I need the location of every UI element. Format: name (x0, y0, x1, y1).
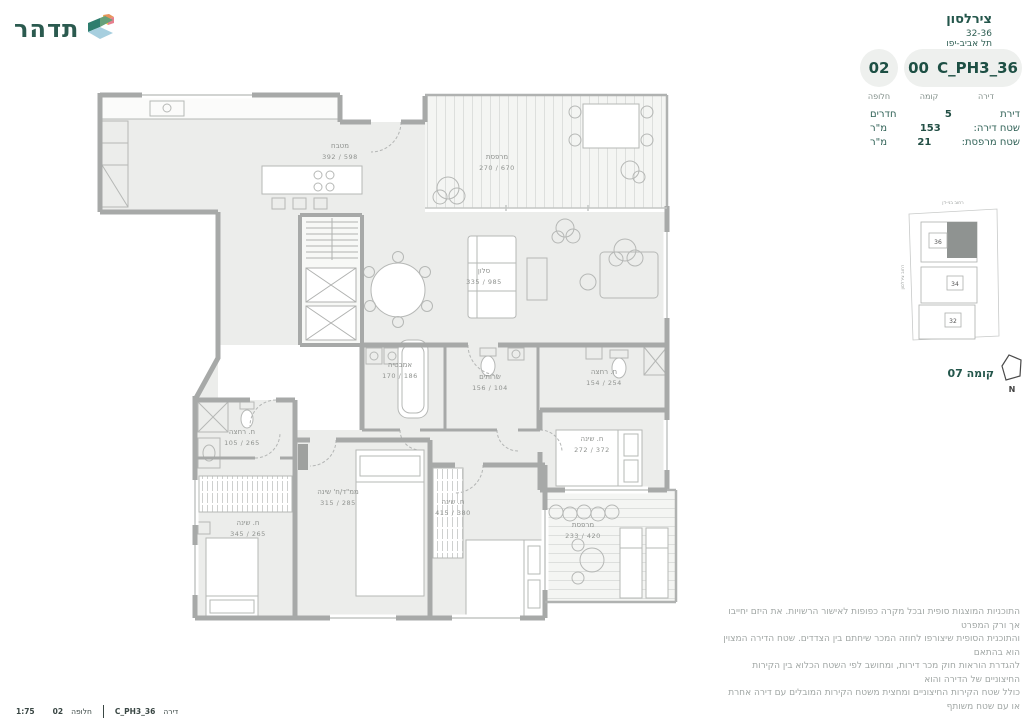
key-plan: 36 34 32 רחוב בני-דן רחוב צירלסון (901, 201, 999, 340)
room-label-bedroom-left: ח. שינה265 / 345 (203, 518, 293, 540)
company-logo-text: תדהר (14, 15, 79, 43)
keyplan-street-left: רחוב צירלסון (901, 264, 906, 289)
detail-balcony-label: שטח מרפסת: (962, 136, 1020, 150)
footer-alt-value: 02 (53, 707, 63, 716)
room-label-mamad: ממ"ד/ח' שינה285 / 315 (293, 487, 383, 509)
footer-alt-label: חלופה (71, 707, 92, 716)
room-label-living: סלון985 / 335 (439, 266, 529, 288)
stairs-elevator-core (302, 217, 360, 343)
unit-value: 36_C_PH3 (937, 59, 1018, 77)
room-label-balcony-bottom: מרפסת420 / 233 (538, 520, 628, 542)
company-logo: תדהר (14, 14, 119, 44)
disclaimer-line-2: והתוכנית הסופית שיצורפו לחוזה המכר שיחתם… (720, 633, 1020, 660)
apartment-details: דירת 5 חדרים שטח דירה: 153 מ"ר שטח מרפסת… (870, 108, 1020, 150)
keyplan-building-34: 34 (951, 281, 959, 288)
detail-balcony-value: 21 (917, 136, 931, 150)
detail-rooms-unit: חדרים (870, 108, 897, 122)
footer-scale: 1:75 (16, 707, 35, 716)
keyplan-building-32: 32 (949, 318, 957, 325)
unit-label: דירה (956, 92, 1016, 101)
project-numbers: 32-36 (946, 29, 992, 39)
detail-rooms-label: דירת (1000, 108, 1020, 122)
legal-disclaimer: התוכניות המוצגות סופית ובכל מקרה כפופות … (720, 606, 1020, 714)
project-city: תל אביב-יפו (946, 39, 992, 49)
detail-rooms-value: 5 (945, 108, 952, 122)
room-label-bedroom-mid: ח. שינה380 / 415 (408, 497, 498, 519)
room-label-wc: שרותים104 / 156 (445, 372, 535, 394)
alternative-badge: 02 (860, 49, 898, 87)
disclaimer-line-1: התוכניות המוצגות סופית ובכל מקרה כפופות … (720, 606, 1020, 633)
footer-divider (103, 705, 104, 718)
disclaimer-line-3: להגדרת הוראות חוק מכר דירות, ומחושב לפי … (720, 660, 1020, 687)
detail-area: שטח דירה: 153 מ"ר (870, 122, 1020, 136)
keyplan-building-36: 36 (934, 239, 942, 246)
disclaimer-line-4: כולל שטח הקירות החיצוניים ומחצית משטח הק… (720, 687, 1020, 714)
footer-unit-label: דירה (163, 707, 178, 716)
footer-unit-value: 36_C_PH3 (115, 707, 155, 716)
detail-area-value: 153 (920, 122, 941, 136)
keyplan-street-top: רחוב בני-דן (942, 201, 964, 206)
unit-floor-badge: 36_C_PH3 00 (904, 49, 1022, 87)
north-letter: N (1009, 385, 1016, 394)
alternative-value: 02 (869, 59, 890, 77)
north-arrow-icon: N (1002, 355, 1021, 394)
floor-value: 00 (908, 59, 929, 77)
company-logo-icon (83, 14, 119, 44)
room-label-bathroom: אמבטיה186 / 170 (355, 360, 445, 382)
detail-balcony-unit: מ"ר (870, 136, 887, 150)
floorplan-sheet: 36 34 32 רחוב בני-דן רחוב צירלסון N תדהר (0, 0, 1024, 726)
room-label-balcony-top: מרפסת670 / 270 (452, 152, 542, 174)
project-name: צירלסון (946, 12, 992, 27)
room-label-shower-room: ח. רחצה254 / 154 (559, 367, 649, 389)
room-label-shower-2: ח. רחצה265 / 105 (197, 427, 287, 449)
room-label-kitchen: מטבח598 / 392 (295, 141, 385, 163)
detail-balcony: שטח מרפסת: 21 מ"ר (870, 136, 1020, 150)
sheet-footer: דירה 36_C_PH3 חלופה 02 1:75 (16, 705, 178, 718)
floor-label: קומה (899, 92, 959, 101)
project-title-block: צירלסון 32-36 תל אביב-יפו (946, 12, 992, 49)
detail-area-unit: מ"ר (870, 122, 887, 136)
detail-rooms: דירת 5 חדרים (870, 108, 1020, 122)
detail-area-label: שטח דירה: (973, 122, 1020, 136)
floor-indicator: קומה 07 (947, 367, 994, 380)
room-label-master-bedroom: ח. שינה372 / 272 (547, 434, 637, 456)
